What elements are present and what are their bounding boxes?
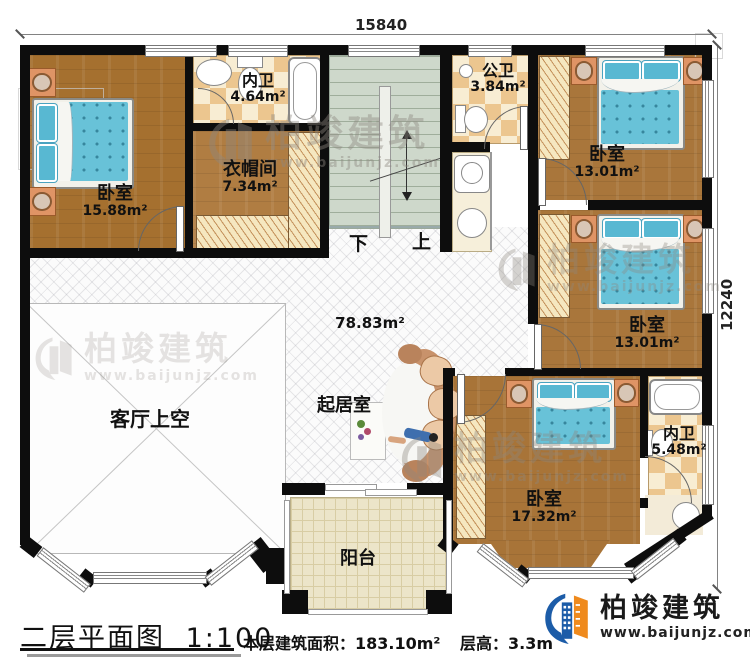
- sink: [457, 208, 487, 238]
- stair-down-label: 下: [349, 229, 368, 256]
- rug-flower: [364, 428, 371, 435]
- bed: [597, 214, 685, 310]
- wall-bedroom-mr-left: [528, 210, 538, 324]
- bed-duvet: [536, 407, 610, 444]
- stair-arrow-down: [402, 192, 412, 201]
- wall-cloakroom-right: [320, 45, 329, 258]
- room-label-balcony: 阳台: [340, 550, 376, 569]
- bed-pillow: [37, 144, 57, 182]
- room-name: 卧室: [511, 491, 576, 510]
- nightstand: [28, 68, 56, 97]
- room-name: 卧室: [82, 185, 147, 204]
- sofa-armrest: [398, 344, 422, 364]
- area-note: 本层建筑面积：183.10m² 层高：3.3m: [243, 630, 553, 654]
- nightstand: [28, 187, 56, 216]
- wall-bedroom-tl-right: [185, 45, 193, 258]
- wardrobe: [539, 214, 570, 318]
- bay-wall-corner: [266, 548, 284, 584]
- room-label-bath-top: 内卫 4.64m²: [230, 73, 285, 105]
- toilet-bowl: [464, 106, 488, 133]
- stair-rail: [379, 86, 391, 238]
- nightstand-knob: [617, 383, 635, 402]
- nightstand: [614, 379, 639, 407]
- room-area: 7.34m²: [222, 180, 277, 195]
- wall-bedroom-tr-bottom-b: [588, 200, 712, 210]
- wall-cloakroom-bottom: [185, 248, 329, 258]
- wardrobe: [539, 56, 570, 160]
- room-area: 5.48m²: [651, 443, 706, 458]
- window-top-public-bath: [468, 45, 512, 57]
- nightstand-knob: [510, 384, 529, 403]
- bed-pillow: [37, 104, 57, 142]
- area-note-value: 183.10m²: [355, 634, 440, 653]
- wash-counter-edge: [490, 152, 492, 250]
- wall-bath-top-bottom: [193, 123, 320, 131]
- door-leaf-bedroom-bottom: [457, 374, 465, 424]
- window-top-bath: [228, 45, 288, 57]
- room-area: 78.83m²: [335, 315, 405, 332]
- room-label-bedroom-tr: 卧室 13.01m²: [574, 146, 639, 180]
- balcony-sliding-door: [365, 489, 417, 496]
- bay-window-center: [93, 572, 207, 584]
- window-top-bedroom-tl: [145, 45, 217, 57]
- floor-plan-canvas: 15840 12240: [0, 0, 750, 660]
- stair-up-label: 上: [412, 227, 431, 254]
- brand-logo-name: 柏竣建筑: [600, 595, 750, 622]
- room-name: 衣帽间: [222, 161, 277, 180]
- room-area: 4.64m²: [230, 90, 285, 105]
- bed-duvet: [601, 90, 679, 144]
- dimension-right-label: 12240: [718, 283, 736, 331]
- room-name: 内卫: [230, 73, 285, 90]
- room-area: 15.88m²: [82, 204, 147, 219]
- room-area: 3.84m²: [470, 80, 525, 95]
- room-label-public-bath: 公卫 3.84m²: [470, 63, 525, 95]
- wardrobe: [196, 215, 289, 249]
- nightstand: [571, 57, 597, 85]
- wardrobe: [288, 132, 321, 249]
- stair-arrow-up: [402, 130, 412, 139]
- title-underline-shadow: [27, 654, 241, 657]
- nightstand-knob: [575, 61, 594, 80]
- bathtub: [288, 57, 322, 125]
- room-name: 卧室: [574, 146, 639, 165]
- wall-balcony-top-left: [282, 483, 325, 495]
- bed-pillow: [642, 61, 680, 81]
- brand-logo-icon: [541, 590, 593, 646]
- wall-exterior-left: [20, 45, 30, 545]
- door-leaf-public-bath: [520, 106, 528, 150]
- person-head: [429, 433, 438, 442]
- balcony-railing-right: [446, 500, 452, 594]
- window-top-bedroom-tr: [585, 45, 665, 57]
- rug-flower: [357, 420, 365, 428]
- bed: [32, 98, 134, 189]
- room-name: 客厅上空: [110, 409, 190, 430]
- nightstand-knob: [575, 219, 594, 238]
- height-note-label: 层高：: [460, 634, 508, 653]
- room-label-bedroom-tl: 卧室 15.88m²: [82, 185, 147, 219]
- bed: [532, 378, 616, 450]
- room-label-bedroom-bottom: 卧室 17.32m²: [511, 491, 576, 525]
- bed-pillow: [642, 219, 680, 239]
- window-top-stairs: [348, 45, 420, 57]
- wall-bath-bottom-left-a: [640, 376, 648, 458]
- bed: [597, 56, 685, 150]
- window-right-bedroom-tr: [702, 80, 714, 178]
- room-label-bedroom-mr: 卧室 13.01m²: [614, 317, 679, 351]
- bed-pillow: [603, 219, 641, 239]
- room-name: 公卫: [470, 63, 525, 80]
- nightstand: [571, 215, 597, 243]
- rug-flower: [358, 434, 364, 440]
- window-right-bedroom-mr: [702, 228, 714, 314]
- sink: [196, 59, 232, 86]
- nightstand: [506, 380, 532, 408]
- area-note-label: 本层建筑面积：: [243, 634, 355, 653]
- room-area: 17.32m²: [511, 510, 576, 525]
- wall-stair-right: [440, 45, 452, 252]
- room-label-sitting-hall: 起居室: [317, 397, 371, 416]
- room-name: 内卫: [651, 426, 706, 443]
- room-label-cloakroom: 衣帽间 7.34m²: [222, 161, 277, 195]
- dimension-top-label: 15840: [355, 16, 407, 34]
- washing-machine-door: [461, 162, 483, 184]
- brand-logo: 柏竣建筑 www.baijunjz.com: [541, 590, 750, 646]
- bed-duvet: [68, 102, 128, 181]
- room-name: 卧室: [614, 317, 679, 336]
- door-leaf-bedroom-mr: [534, 324, 542, 370]
- sofa-armrest: [402, 460, 430, 482]
- room-area: 13.01m²: [574, 165, 639, 180]
- balcony-railing-bottom: [308, 609, 428, 615]
- bathtub: [649, 379, 705, 415]
- bathtub-inner: [293, 62, 317, 120]
- room-name: 起居室: [317, 397, 371, 416]
- nightstand-knob: [32, 192, 52, 212]
- dimension-line-top: [20, 34, 712, 35]
- door-leaf-bedroom-tr: [538, 158, 546, 206]
- room-area: 13.01m²: [614, 336, 679, 351]
- brand-logo-url: www.baijunjz.com: [600, 625, 750, 641]
- room-label-living-void: 客厅上空: [110, 409, 190, 430]
- balcony-railing-left: [284, 500, 290, 594]
- hall-area-label: 78.83m²: [335, 315, 405, 332]
- title-underline: [20, 648, 234, 651]
- bedroom-bay-window-center: [528, 567, 634, 579]
- bed-pillow: [603, 61, 641, 81]
- wardrobe: [456, 415, 486, 539]
- room-label-bath-bottom: 内卫 5.48m²: [651, 426, 706, 458]
- door-leaf-bedroom-tl: [176, 206, 184, 252]
- nightstand-knob: [32, 73, 52, 93]
- bed-duvet: [601, 249, 679, 304]
- room-name: 阳台: [340, 550, 376, 569]
- bathtub-inner: [654, 384, 700, 410]
- stair-direction-line: [406, 138, 407, 194]
- wall-bedroom-tr-left: [528, 45, 538, 210]
- bed-sheet-fold: [58, 102, 73, 181]
